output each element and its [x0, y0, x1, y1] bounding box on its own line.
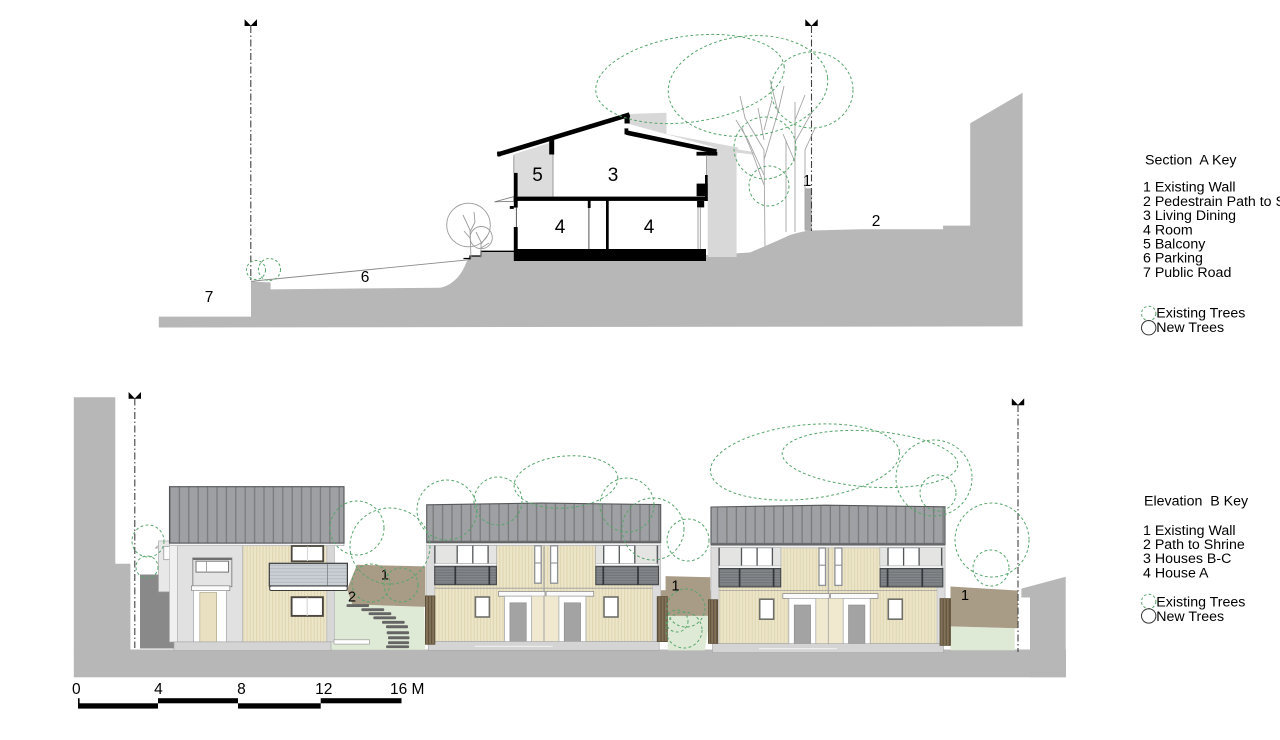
svg-text:7 Public Road: 7 Public Road — [1143, 265, 1231, 281]
svg-text:1: 1 — [803, 173, 812, 190]
svg-text:7: 7 — [205, 289, 214, 306]
svg-text:New Trees: New Trees — [1156, 609, 1224, 625]
svg-text:4: 4 — [154, 681, 163, 698]
svg-text:8: 8 — [237, 681, 246, 698]
svg-text:0: 0 — [72, 681, 81, 698]
svg-text:2: 2 — [872, 213, 881, 230]
svg-text:Section A Key: Section A Key — [1145, 152, 1237, 168]
svg-text:5: 5 — [532, 165, 543, 186]
svg-text:3: 3 — [608, 165, 619, 186]
svg-text:New Trees: New Trees — [1156, 320, 1224, 336]
svg-text:4 House A: 4 House A — [1143, 565, 1209, 581]
svg-text:Elevation B Key: Elevation B Key — [1144, 494, 1249, 510]
svg-text:2: 2 — [348, 590, 356, 606]
svg-text:1: 1 — [672, 579, 680, 595]
svg-text:1: 1 — [961, 588, 969, 604]
svg-text:4: 4 — [644, 217, 655, 238]
svg-text:6: 6 — [361, 269, 370, 286]
svg-text:12: 12 — [315, 681, 332, 698]
svg-text:16 M: 16 M — [390, 681, 424, 698]
svg-text:4: 4 — [555, 217, 566, 238]
